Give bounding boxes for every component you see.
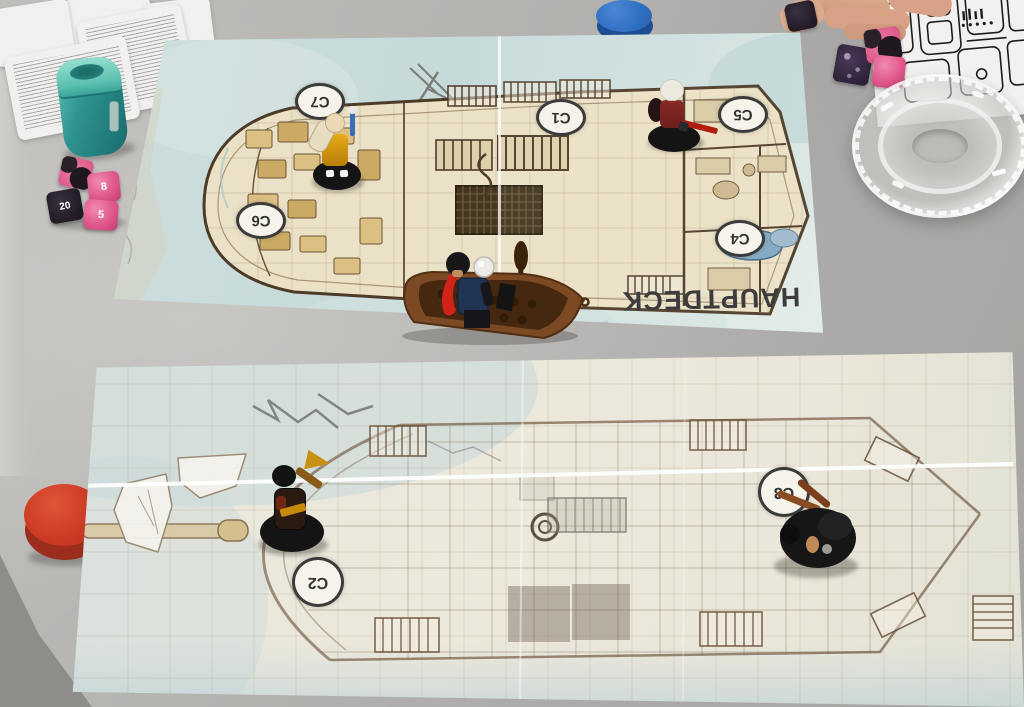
room-label-text: C2 (308, 573, 329, 591)
white-hair (660, 79, 684, 101)
room-label-text: C1 (551, 109, 570, 126)
die[interactable]: 5 (83, 199, 119, 231)
creature-lump (818, 512, 852, 540)
prone-creature-miniature[interactable] (756, 482, 872, 586)
pink-black-dice-cluster[interactable]: 8 20 5 (44, 158, 132, 234)
teal-container[interactable] (50, 48, 134, 162)
yellow-hero-miniature[interactable] (310, 104, 366, 196)
crystal-dice-bowl[interactable] (852, 74, 1024, 218)
rowboat-art (398, 240, 590, 346)
held-die[interactable] (783, 0, 818, 33)
die[interactable]: 20 (45, 187, 84, 224)
staff-tip (348, 106, 357, 114)
room-label-text: C4 (730, 230, 749, 247)
disc-top (596, 0, 652, 32)
lego-rowboat[interactable] (398, 240, 590, 346)
map-title-hauptdeck: HAUPTDECK (624, 277, 799, 322)
room-label-text: C6 (251, 212, 270, 229)
base-pip (326, 170, 334, 178)
black-hair (272, 465, 296, 487)
label-glint (110, 101, 119, 131)
die-value: 20 (59, 200, 72, 213)
tan-patch (806, 536, 819, 553)
room-label-text: C5 (733, 106, 752, 123)
map-title-text: HAUPTDECK (621, 281, 800, 317)
lower-deck-map (68, 346, 1024, 707)
grey-patch (822, 544, 832, 554)
lower-map-art (68, 346, 1024, 707)
creature-head (780, 524, 800, 544)
die-value: 8 (100, 181, 107, 194)
base-pip (340, 170, 348, 178)
boarding-fighter-miniature[interactable] (246, 450, 342, 560)
die-value: 5 (98, 209, 105, 221)
bowl-center (912, 129, 968, 164)
white-haired-red-coat-miniature[interactable] (642, 76, 730, 158)
photo-scene: 8 20 5 (0, 0, 1024, 707)
gold-pennant (304, 450, 332, 475)
mini-head (325, 113, 345, 133)
